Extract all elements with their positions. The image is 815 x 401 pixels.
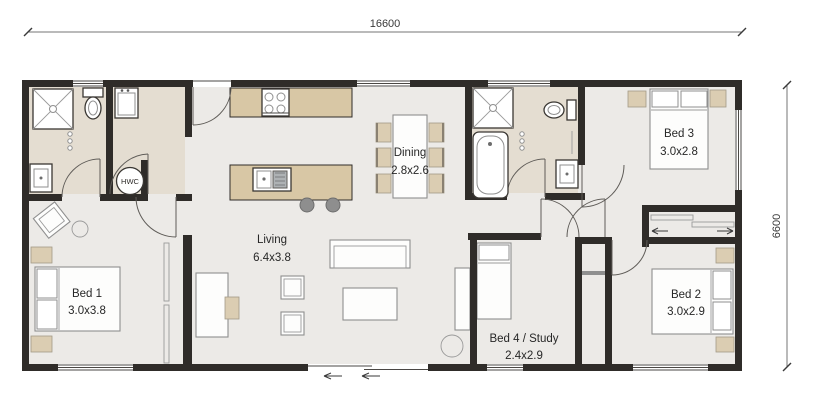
room-size-bed1: 3.0x3.8 (68, 305, 106, 317)
bedside-table (716, 337, 734, 352)
laundry-tub (115, 88, 138, 118)
room-size-dining: 2.8x2.6 (391, 165, 429, 177)
bedside-table (31, 336, 52, 352)
vanity-sink (556, 160, 578, 188)
towel-hook-icon (520, 132, 524, 136)
room-label-dining: Dining (394, 147, 427, 159)
hot-water-cylinder: HWC (117, 168, 144, 195)
toilet (83, 88, 103, 119)
tv-cabinet (196, 273, 228, 337)
room-label-bed4: Bed 4 / Study (489, 333, 558, 345)
window (633, 364, 708, 371)
vanity-sink (30, 164, 52, 192)
towel-hook-icon (68, 139, 72, 143)
toilet (544, 100, 576, 120)
slide-arrow-icon (324, 373, 342, 379)
window (357, 80, 410, 87)
bedside-table (31, 247, 52, 263)
dimension-top-label: 16600 (370, 18, 401, 30)
closet-shelf (582, 271, 605, 275)
sofa (330, 240, 410, 268)
room-size-bed3: 3.0x2.8 (660, 146, 698, 158)
entry-opening (193, 80, 231, 87)
room-size-living: 6.4x3.8 (253, 252, 291, 264)
dimension-right-label: 6600 (771, 214, 783, 238)
room-label-living: Living (257, 234, 287, 246)
slide-arrow-icon (362, 373, 380, 379)
window (735, 110, 742, 190)
towel-hook-icon (520, 139, 524, 143)
window (487, 364, 523, 371)
shower (473, 88, 513, 128)
shower (33, 89, 73, 129)
bathtub (473, 132, 508, 198)
room-size-bed4: 2.4x2.9 (505, 350, 543, 362)
window (488, 80, 550, 87)
towel-hook-icon (68, 146, 72, 150)
coffee-table (343, 288, 397, 320)
island-stool (300, 198, 314, 212)
towel-hook-icon (520, 146, 524, 150)
window (58, 364, 133, 371)
island-sink (253, 168, 291, 191)
room-label-bed1: Bed 1 (72, 288, 102, 300)
desk (455, 268, 470, 330)
dimension-top: 16600 (24, 18, 746, 36)
towel-hook-icon (68, 132, 72, 136)
side-table (281, 312, 304, 335)
island-stool (326, 198, 340, 212)
stove (262, 89, 289, 116)
room-label-bed3: Bed 3 (664, 128, 694, 140)
kitchen-counter (230, 88, 352, 117)
bedside-table (710, 90, 726, 107)
room-size-bed2: 3.0x2.9 (667, 306, 705, 318)
window (73, 80, 103, 87)
bedside-table (628, 91, 646, 107)
floor-plan: HWC Living 6.4x3.8 Din (0, 0, 815, 401)
room-label-bed2: Bed 2 (671, 289, 701, 301)
bedside-table (716, 248, 734, 263)
side-table (281, 276, 304, 299)
hwc-label: HWC (121, 177, 139, 186)
dimension-right: 6600 (771, 81, 791, 371)
tv (225, 297, 239, 319)
sliding-door (308, 364, 428, 379)
bed4-furniture (477, 243, 511, 319)
